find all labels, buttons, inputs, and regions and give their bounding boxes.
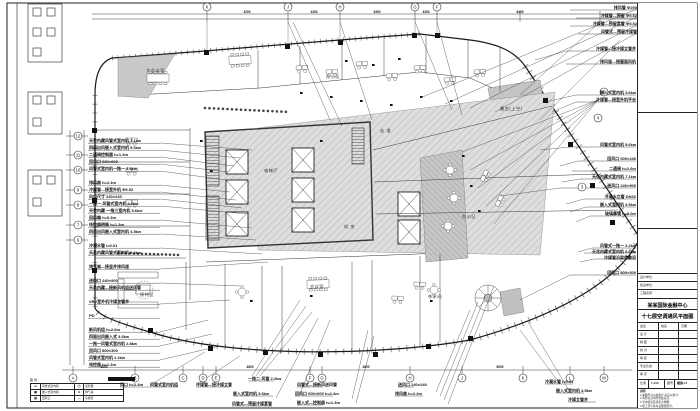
annotation-label: 排风道—接屋面风机 xyxy=(600,58,636,64)
legend-name: 冷媒管 xyxy=(83,396,109,401)
signoff-blank xyxy=(658,371,678,379)
designer-field: 设计单位 xyxy=(638,274,697,282)
scale-value: 1:100 xyxy=(648,380,664,388)
legend-symbol: — xyxy=(74,396,83,401)
annotation-label: 回风口 600×600 xyxy=(89,158,119,164)
dim-value: 5400 xyxy=(373,10,380,14)
core-hatch-region xyxy=(205,92,555,262)
signoff-row: 设 计 xyxy=(638,331,697,339)
title-block: 设计单位 建设单位 工程名称 某某国际金融中心 十七层空调通风平面图 会签 姓名… xyxy=(637,3,697,408)
annotation-label: 天花内藏风管式室内机 7.1kw xyxy=(89,137,142,143)
annotation-label: 四面出风嵌入式 3.6kw xyxy=(89,333,130,339)
legend-symbol: Ⓣ xyxy=(74,384,83,389)
annotation-label: 冷媒管—接冷媒立管井 xyxy=(596,45,636,51)
annotation-label: PD xyxy=(89,313,95,318)
signoff-blank xyxy=(678,355,697,362)
general-notes: 说明: 1.本图尺寸以毫米计,标高以米计; 2.风管标高均为管底标高; 3.室内… xyxy=(638,389,697,409)
grid-bubble-label: D xyxy=(201,376,204,381)
annotation-label: 嵌入式室内机 3.6kw xyxy=(233,390,270,396)
grid-bubble-label: M xyxy=(602,376,606,381)
scale-row: 比例 1:100 图号 暖施-17 xyxy=(638,380,697,389)
annotation-label: 风管式—预留冷媒管 xyxy=(601,28,637,34)
annotation-label: 冷媒管—预留 Φ9.52 xyxy=(601,12,638,18)
annotation-label: 四面出风嵌入式室内机 5.6kw xyxy=(89,144,142,150)
room-label: 露台(上空) xyxy=(500,105,523,112)
dim-value: 4800 xyxy=(246,365,253,369)
legend-symbol: ▨ xyxy=(31,396,40,401)
room-label: 茶水间 xyxy=(428,293,442,300)
grid-bubble-label: F xyxy=(309,376,312,381)
room-label: 机 房 xyxy=(344,223,355,230)
annotation-label: 冷凝水管 i=0.01 xyxy=(545,378,574,384)
grid-bubble-label: G xyxy=(413,5,416,10)
drawing-number-label: 图号 xyxy=(664,380,674,388)
spiral-stair xyxy=(475,285,501,311)
annotation-label: 排风扇 h=2.4m xyxy=(89,179,116,185)
grid-bubble-label: J xyxy=(461,376,463,381)
annotation-label: 二通阀控制器 h=1.3m xyxy=(89,151,128,157)
annotation-label: 风管式室内机组 xyxy=(150,381,178,387)
signoff-blank xyxy=(658,355,678,362)
note-line: 4.施工须与各专业图纸配合。 xyxy=(640,405,695,409)
grid-bubble-label: F xyxy=(436,5,439,10)
signoff-blank xyxy=(658,347,678,354)
annotation-label: 冷媒管—接冷媒立管 xyxy=(196,381,232,387)
grid-bubble-label: E xyxy=(215,376,218,381)
signoff-col1: 会签 xyxy=(638,323,658,330)
edge-schedule-boxes xyxy=(28,4,62,216)
legend-name: 温控器 xyxy=(83,384,109,389)
signoff-blank xyxy=(678,331,697,338)
annotation-label: 送风口 240×240 xyxy=(397,381,428,387)
annotation-label: 一拖二·风管 2.2kw xyxy=(248,375,282,381)
signoff-row: 审 核 xyxy=(638,355,697,363)
client-field: 建设单位 xyxy=(638,282,697,290)
room-label: 办公区 xyxy=(326,73,340,80)
signoff-blank xyxy=(678,363,697,370)
legend-name: 排气扇 xyxy=(83,390,109,395)
grid-bubble-label: G xyxy=(320,376,323,381)
title-block-empty-field xyxy=(638,3,697,113)
room-label: 大会议室 xyxy=(146,67,165,74)
project-title: 某某国际金融中心 xyxy=(638,299,697,310)
annotation-label: 风管式室内机 2.2kw xyxy=(89,354,126,360)
grid-bubble-label: K xyxy=(522,376,525,381)
grid-bubble-label: J xyxy=(287,5,289,10)
dim-value: 6000 xyxy=(496,365,503,369)
annotation-label: 回风口 600×600 h=2.4m xyxy=(295,390,339,396)
signoff-blank xyxy=(658,339,678,346)
grid-bubble-label: 11 xyxy=(76,153,81,158)
legend-symbol: ▣ xyxy=(31,390,40,395)
annotation-label: 排气扇—接竖井排风道 xyxy=(89,263,129,269)
dim-value: 4200 xyxy=(422,10,429,14)
signoff-header-row: 会签 姓名 日期 xyxy=(638,323,697,331)
annotation-label: 风管式—预留冷媒套管 xyxy=(232,400,272,406)
annotation-label: 排风管 Φ250 xyxy=(614,4,638,10)
annotation-label: 天花内藏式室内机 5.6kw xyxy=(592,248,637,254)
grid-bubble-label: 10 xyxy=(76,168,81,173)
floor-plan-canvas: K J H G F 12 11 10 9 8 7 6 A B C D E F G… xyxy=(0,0,700,411)
signoff-row: 审 定 xyxy=(638,371,697,380)
annotation-label: 一拖一·风管式室内机 2.2kw xyxy=(89,200,139,206)
grid-bubble-label: H xyxy=(408,376,411,381)
legend-name: 嵌入式室内机 xyxy=(40,390,74,395)
annotation-label: 嵌入式—控制器 h=1.3m xyxy=(297,399,340,405)
annotation-label: 冷媒管—接室外机平台 xyxy=(596,96,636,102)
signoff-blank xyxy=(678,371,697,379)
title-block-empty-field xyxy=(638,229,697,274)
north-reference-bar xyxy=(108,377,135,381)
room-label: 会议室 xyxy=(310,283,324,290)
title-block-empty-field xyxy=(638,113,697,229)
annotation-label: 玻璃幕墙 h=3.0m xyxy=(605,210,636,216)
annotation-label: 风管式一拖一 2.2kw xyxy=(600,242,637,248)
annotation-label: 回风口 800×300 xyxy=(607,269,637,275)
legend-symbol: ▭ xyxy=(31,384,40,389)
annotation-label: 线控器 h=1.3m xyxy=(89,361,116,367)
drawing-title: 十七层空调通风平面图 xyxy=(638,310,697,323)
signoff-label: 审 定 xyxy=(638,371,658,379)
annotation-label: 天花内藏风管式室内机 5.6kw xyxy=(89,249,142,255)
grid-bubble-label: K xyxy=(206,5,209,10)
room-label: 走 道 xyxy=(380,127,391,134)
grid-bubble-label: C xyxy=(181,376,184,381)
annotation-label: 嵌入式室内机 3.6kw xyxy=(600,89,637,95)
annotation-label: 天花内藏—接新风机组送风管 xyxy=(89,284,141,290)
signoff-col2: 姓名 xyxy=(658,323,678,330)
legend-row: ▨ 回风口 — 冷媒管 xyxy=(31,395,123,401)
signoff-row: 专业负责 xyxy=(638,363,697,371)
annotation-label: 嵌入式室内机 4.5kw xyxy=(600,201,637,207)
annotation-label: 四面出风嵌入式室内机 4.5kw xyxy=(89,228,142,234)
signoff-label: 校 对 xyxy=(638,347,658,354)
signoff-label: 设 计 xyxy=(638,331,658,338)
signoff-row: 校 对 xyxy=(638,347,697,355)
legend-symbol: ⊙ xyxy=(74,390,83,395)
room-label: 接待区 xyxy=(140,291,154,298)
annotation-label: 风管式室内机一拖一 3.6kw xyxy=(89,165,138,171)
annotation-label: 回风箱 h=0.3m xyxy=(89,214,116,220)
annotation-label: 风管式—接新风送风管 xyxy=(297,381,337,387)
signoff-blank xyxy=(658,363,678,370)
annotation-label: 冷凝水立管 DN32 xyxy=(605,193,637,199)
signoff-blank xyxy=(678,339,697,346)
signoff-blank xyxy=(678,347,697,354)
legend-name: 风管式室内机 xyxy=(40,384,74,389)
annotation-label: VRV室外机冷媒立管井 xyxy=(89,298,129,304)
annotation-label: 冷媒管—预留套管 Φ9.52 xyxy=(593,20,638,26)
annotation-label: 风管式室内机 5.6kw xyxy=(600,141,637,147)
signoff-blank xyxy=(658,331,678,338)
signoff-row: 制 图 xyxy=(638,339,697,347)
annotation-label: 冷媒管沿梁底敷设 xyxy=(604,254,636,260)
annotation-label: 送风口 240×900 xyxy=(88,277,119,283)
drawing-sheet: K J H G F 12 11 10 9 8 7 6 A B C D E F G… xyxy=(0,0,700,411)
annotation-label: 一拖一风管式室内机 2.8kw xyxy=(89,340,138,346)
signoff-label: 审 核 xyxy=(638,355,658,362)
grid-bubble-label: H xyxy=(338,5,341,10)
signoff-label: 专业负责 xyxy=(638,363,658,370)
room-label: 办公区 xyxy=(462,213,476,220)
signoff-label: 制 图 xyxy=(638,339,658,346)
room-label: 电梯厅 xyxy=(264,167,278,174)
annotations-right: 冷媒管—接冷媒立管井 排风道—接屋面风机 嵌入式室内机 3.6kw 冷媒管—接室… xyxy=(592,4,638,275)
annotation-label: 排风扇 h=2.4m xyxy=(395,390,422,396)
annotation-label: 二通阀 h=2.6m xyxy=(609,165,636,171)
legend-table: ▭ 风管式室内机 Ⓣ 温控器 ▣ 嵌入式室内机 ⊙ 排气扇 ▨ 回风口 — 冷媒… xyxy=(30,383,124,402)
drawing-number-value: 暖施-17 xyxy=(674,380,697,388)
dim-value: 4800 xyxy=(362,365,369,369)
annotation-label: 线控器明装 h=1.3m xyxy=(89,221,124,227)
legend-name: 回风口 xyxy=(40,396,74,401)
annotation-label: 嵌入式室内机 4.5kw xyxy=(556,387,593,393)
dim-value: 4200 xyxy=(243,10,250,14)
annotation-label: 风口尺寸 240×240 xyxy=(89,193,123,199)
annotation-label: 天花内藏式室内机 7.1kw xyxy=(592,173,637,179)
signoff-col3: 日期 xyxy=(678,323,697,330)
annotation-label: 回风口 800×300 xyxy=(89,347,119,353)
annotation-label: 冷媒管—接室外机 Φ9.52 xyxy=(89,186,134,192)
dim-value: 8400 xyxy=(516,10,523,14)
annotation-label: 回风口 600×240 xyxy=(607,155,637,161)
annotation-label: 天花内藏·一拖三室内机 5.6kw xyxy=(89,207,143,213)
grid-bubble-label: 12 xyxy=(76,134,81,139)
dim-value: 4200 xyxy=(310,10,317,14)
annotation-label: 新风机组 h=2.6m xyxy=(89,326,120,332)
project-field: 工程名称 xyxy=(638,290,697,299)
annotation-label: 冷凝水管 i=0.01 xyxy=(89,242,118,248)
legend: 图 例 ▭ 风管式室内机 Ⓣ 温控器 ▣ 嵌入式室内机 ⊙ 排气扇 ▨ 回风口 … xyxy=(30,378,124,402)
annotation-label: 送风口 240×900 xyxy=(606,182,637,188)
annotation-label: 冷媒立管井 xyxy=(568,396,588,402)
scale-label: 比例 xyxy=(638,380,648,388)
